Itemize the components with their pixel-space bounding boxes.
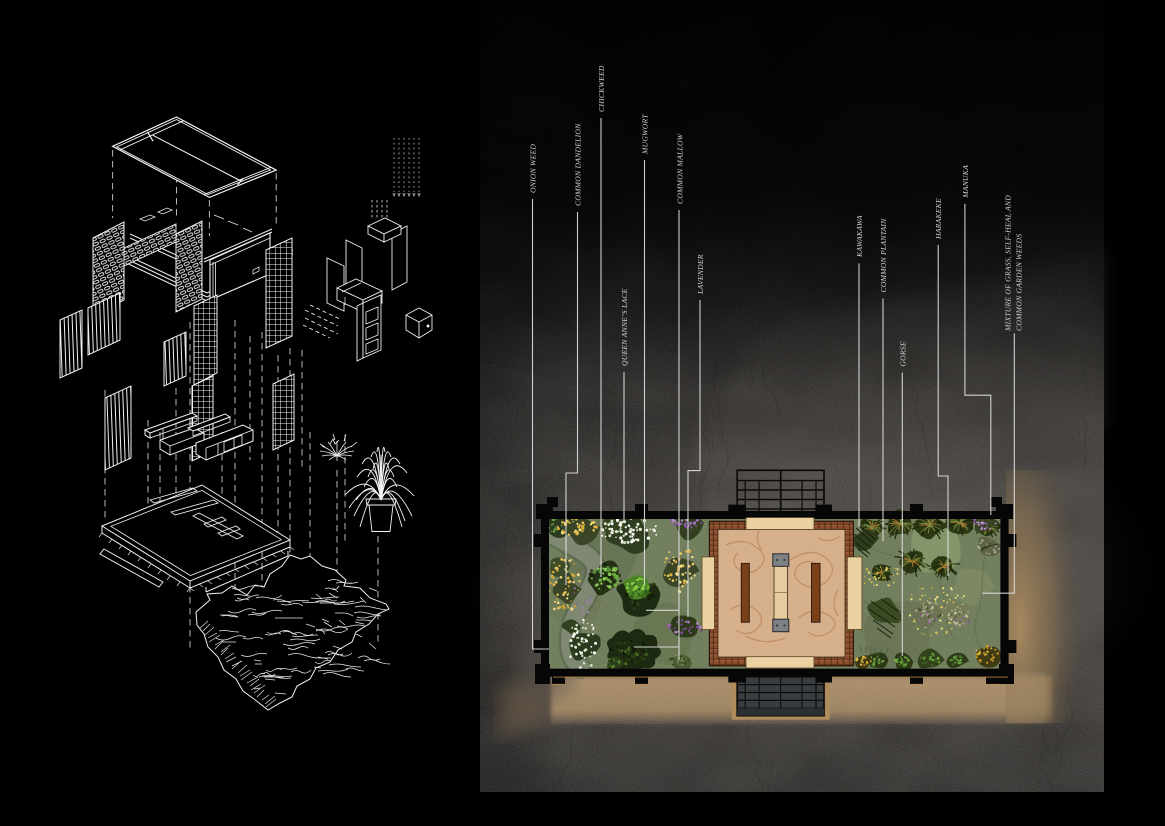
svg-text:MUGWORT: MUGWORT	[641, 114, 650, 155]
svg-text:KAWAKAWA: KAWAKAWA	[855, 215, 864, 258]
svg-text:CHICKWEED: CHICKWEED	[597, 65, 606, 112]
svg-text:MANUKA: MANUKA	[961, 165, 970, 199]
svg-text:COMMON MALLOW: COMMON MALLOW	[676, 133, 685, 204]
svg-text:HARAKEKE: HARAKEKE	[934, 198, 943, 240]
svg-text:LAVENDER: LAVENDER	[696, 254, 705, 295]
svg-text:QUEEN ANNE’S LACE: QUEEN ANNE’S LACE	[620, 288, 629, 366]
svg-text:COMMON PLANTAIN: COMMON PLANTAIN	[879, 218, 888, 293]
svg-text:MIXTURE OF GRASS, SELF-HEAL AN: MIXTURE OF GRASS, SELF-HEAL AND	[1003, 195, 1012, 332]
svg-text:GORSE: GORSE	[898, 341, 907, 366]
svg-text:ONION WEED: ONION WEED	[529, 144, 538, 193]
svg-text:COMMON DANDELION: COMMON DANDELION	[574, 123, 583, 206]
svg-text:COMMON GARDEN WEEDS: COMMON GARDEN WEEDS	[1014, 234, 1023, 331]
